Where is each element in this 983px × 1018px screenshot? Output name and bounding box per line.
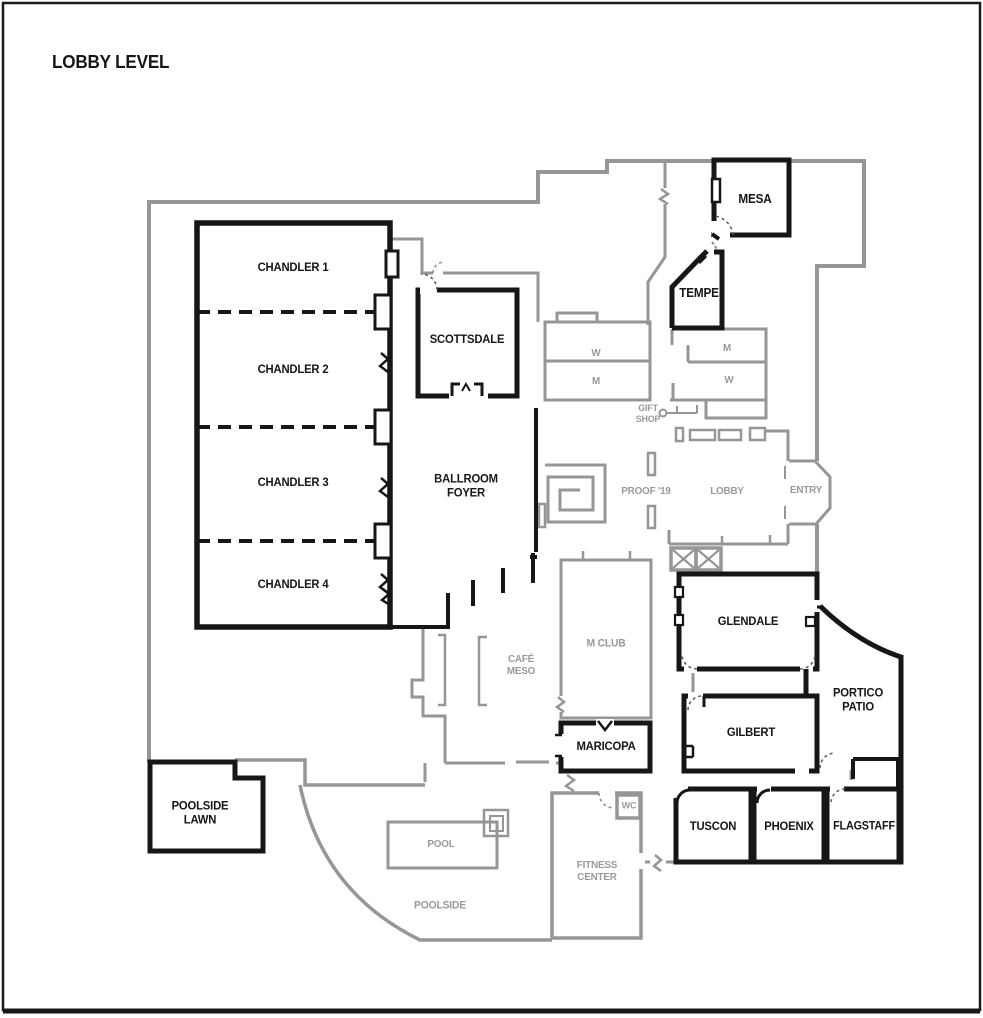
room-label-fitness-center: FITNESS CENTER [577, 860, 617, 884]
room-label-m-left: M [592, 376, 600, 388]
room-label-w-left: W [591, 348, 600, 360]
room-label-maricopa: MARICOPA [576, 740, 635, 754]
room-label-tempe: TEMPE [679, 286, 719, 300]
walls-gray [149, 161, 864, 940]
door-zigzag [660, 189, 668, 204]
chandler-door-notches [375, 251, 398, 558]
room-label-poolside: POOLSIDE [414, 900, 466, 913]
room-label-lobby: LOBBY [710, 486, 744, 498]
poolside-curve [300, 785, 552, 940]
floorplan-canvas [0, 0, 983, 1018]
foyer-columns [473, 408, 537, 606]
room-label-tuscon: TUSCON [690, 820, 737, 834]
proof-bar-shape [545, 465, 605, 522]
room-label-wc: WC [622, 802, 637, 813]
mesa-door-leaf [712, 179, 720, 202]
room-label-chandler-2: CHANDLER 2 [258, 363, 329, 377]
door-zigzag [566, 775, 574, 791]
room-label-portico-patio: PORTICO PATIO [833, 686, 883, 713]
elevators [671, 548, 721, 570]
room-label-chandler-1: CHANDLER 1 [258, 261, 329, 275]
room-label-proof: PROOF '19 [621, 486, 670, 498]
room-label-glendale: GLENDALE [718, 615, 779, 629]
room-label-poolside-lawn: POOLSIDE LAWN [172, 799, 229, 826]
room-label-m-club: M CLUB [586, 638, 625, 651]
room-label-gilbert: GILBERT [727, 726, 775, 740]
room-label-phoenix: PHOENIX [764, 820, 813, 834]
room-label-scottsdale: SCOTTSDALE [430, 333, 505, 347]
lobby-desks [676, 428, 765, 441]
room-label-chandler-3: CHANDLER 3 [258, 476, 329, 490]
room-label-ballroom-foyer: BALLROOM FOYER [434, 472, 498, 499]
room-label-m-right: M [723, 343, 731, 355]
floorplan-page: LOBBY LEVEL CHANDLER 1 CHANDLER 2 CHANDL… [0, 0, 983, 1018]
room-label-entry: ENTRY [790, 485, 822, 497]
room-label-cafe-meso: CAFÉ MESO [507, 654, 535, 678]
door-arc [433, 262, 444, 273]
room-label-w-right: W [724, 375, 733, 387]
door-arc [820, 753, 835, 768]
cafe-counters [438, 635, 487, 705]
room-label-gift-shop: GIFT SHOP [636, 404, 661, 426]
chandler-dividers [197, 312, 376, 541]
room-label-flagstaff: FLAGSTAFF [833, 820, 895, 833]
room-label-mesa: MESA [738, 192, 771, 206]
gift-shop-door-symbol [660, 410, 667, 417]
room-label-chandler-4: CHANDLER 4 [258, 578, 329, 592]
door-zigzag [654, 855, 661, 871]
page-title: LOBBY LEVEL [52, 52, 169, 73]
room-label-pool: POOL [427, 839, 454, 851]
room-shape-restrooms-right [670, 329, 766, 400]
